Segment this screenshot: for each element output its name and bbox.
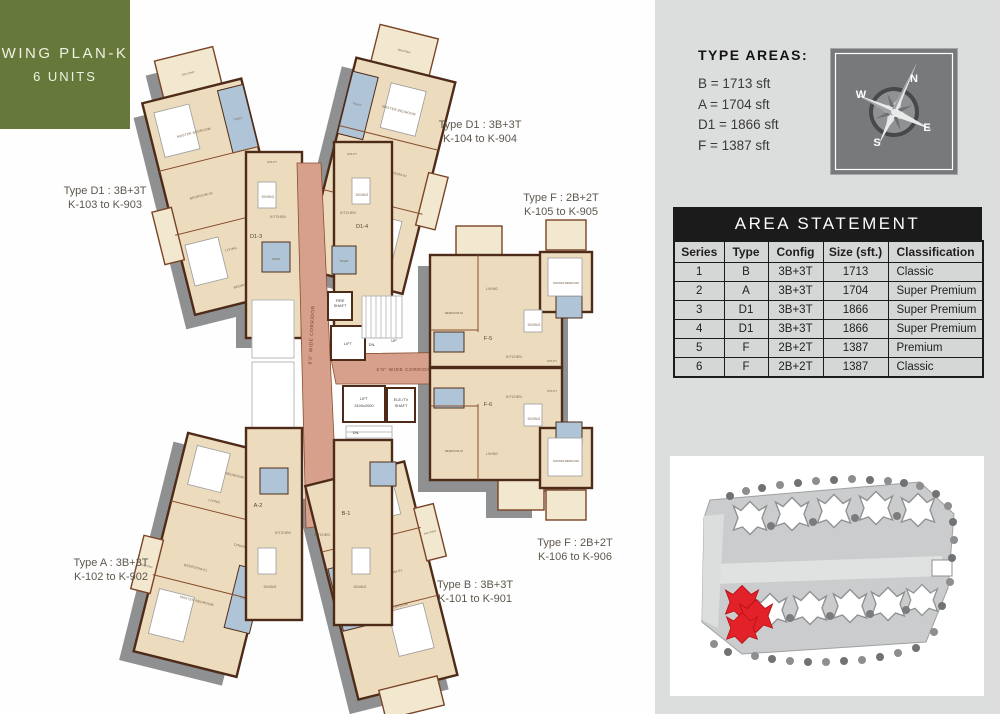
side-panel: TYPE AREAS: B = 1713 sft A = 1704 sft D1… [655,0,1000,714]
room-label: KITCHEN [270,215,286,219]
col-size: Size (sft.) [823,241,888,263]
room-label: BEDROOM-03 [445,449,463,453]
table-row: 4D1 3B+3T1866 Super Premium [674,320,983,339]
table-header-row: Series Type Config Size (sft.) Classific… [674,241,983,263]
compass-label-w: W [856,89,867,101]
unit-label-k101: Type B : 3B+3T K-101 to K-901 [405,579,545,606]
type-area-item: A = 1704 sft [698,95,808,116]
room-label: MASTER BEDROOM [553,281,580,285]
wing-plan-title: WING PLAN-K [2,45,129,62]
room-label: LIVING [486,287,498,291]
room-label: DINING [354,585,367,589]
unit-id-d1-4: D1-4 [356,224,368,230]
area-statement-title: AREA STATEMENT [673,207,982,240]
fire-shaft-label: SHAFT [334,303,347,308]
unit-label-k105: Type F : 2B+2T K-105 to K-905 [491,192,631,219]
room-label: KITCHEN [506,355,522,359]
col-series: Series [674,241,724,263]
type-areas-title: TYPE AREAS: [698,47,808,63]
type-area-item: F = 1387 sft [698,136,808,157]
page: BALCONY MASTER BEDROOM TOILET BEDROOM-01… [0,0,1000,714]
stairs-dn-label: DN. [369,342,376,347]
table-row: 5F 2B+2T1387 Premium [674,339,983,358]
wing-badge: WING PLAN-K 6 UNITS [0,0,130,129]
lift-size-label: 3100x2000 [354,403,374,408]
room-label: DINING [528,417,541,421]
room-label: UTILITY [267,160,277,164]
table-row: 6F 2B+2T1387 Classic [674,358,983,378]
compass-box: N W E S [830,48,958,175]
room-label: UTILITY [547,389,557,393]
room-label: UTILITY [547,359,557,363]
type-area-item: B = 1713 sft [698,74,808,95]
room-label: MASTER BEDROOM [553,459,580,463]
room-label: KITCHEN [506,395,522,399]
room-label: KITCHEN [275,531,291,535]
site-clubhouse [932,560,952,576]
unit-label-k106: Type F : 2B+2T K-106 to K-906 [505,537,645,564]
floor-plan-area: BALCONY MASTER BEDROOM TOILET BEDROOM-01… [0,0,655,714]
room-label: KITCHEN [314,533,330,537]
type-area-item: D1 = 1866 sft [698,115,808,136]
ele-tv-label: SHAFT [395,403,408,408]
room-label: DINING [262,195,275,199]
area-statement-table: Series Type Config Size (sft.) Classific… [673,240,984,378]
wing-units-subtitle: 6 UNITS [33,69,97,84]
unit-label-k102: Type A : 3B+3T K-102 to K-902 [41,557,181,584]
room-label: KITCHEN [340,211,356,215]
type-areas: TYPE AREAS: B = 1713 sft A = 1704 sft D1… [698,47,808,156]
compass-label-s: S [873,137,880,149]
table-row: 1B 3B+3T1713 Classic [674,263,983,282]
room-label: DINING [528,323,541,327]
unit-id-d1-3: D1-3 [250,234,262,240]
room-label: TOILET [339,259,349,263]
table-row: 3D1 3B+3T1866 Super Premium [674,301,983,320]
unit-id-a-2: A-2 [254,503,263,509]
unit-label-k104: Type D1 : 3B+3T K-104 to K-904 [410,119,550,146]
unit-id-b-1: B-1 [342,511,351,517]
col-classification: Classification [888,241,983,263]
unit-label-k103: Type D1 : 3B+3T K-103 to K-903 [35,185,175,212]
room-label: BEDROOM-03 [445,311,463,315]
site-plan-card [670,456,984,696]
lift-label: LIFT [360,396,369,401]
compass-label-e: E [923,122,930,134]
col-config: Config [768,241,823,263]
room-label: LIVING [486,452,498,456]
unit-id-f-6: F-6 [484,402,492,408]
stairs-up-label: UP [391,338,397,343]
compass-label-n: N [910,73,918,85]
stairs-dn-label: DN. [353,430,360,435]
lift-small-label: LIFT [344,341,353,346]
col-type: Type [724,241,768,263]
corridor-label-horizontal: 6'0" WIDE CORRIDOR [377,367,436,372]
room-label: DINING [356,193,369,197]
unit-id-f-5: F-5 [484,336,492,342]
room-label: UTILITY [347,152,357,156]
room-label: DINING [264,585,277,589]
table-row: 2A 3B+3T1704 Super Premium [674,282,983,301]
ele-tv-label: ELE./TV [394,397,409,402]
site-plan-svg [670,456,984,696]
room-label: TOILET [271,257,281,261]
